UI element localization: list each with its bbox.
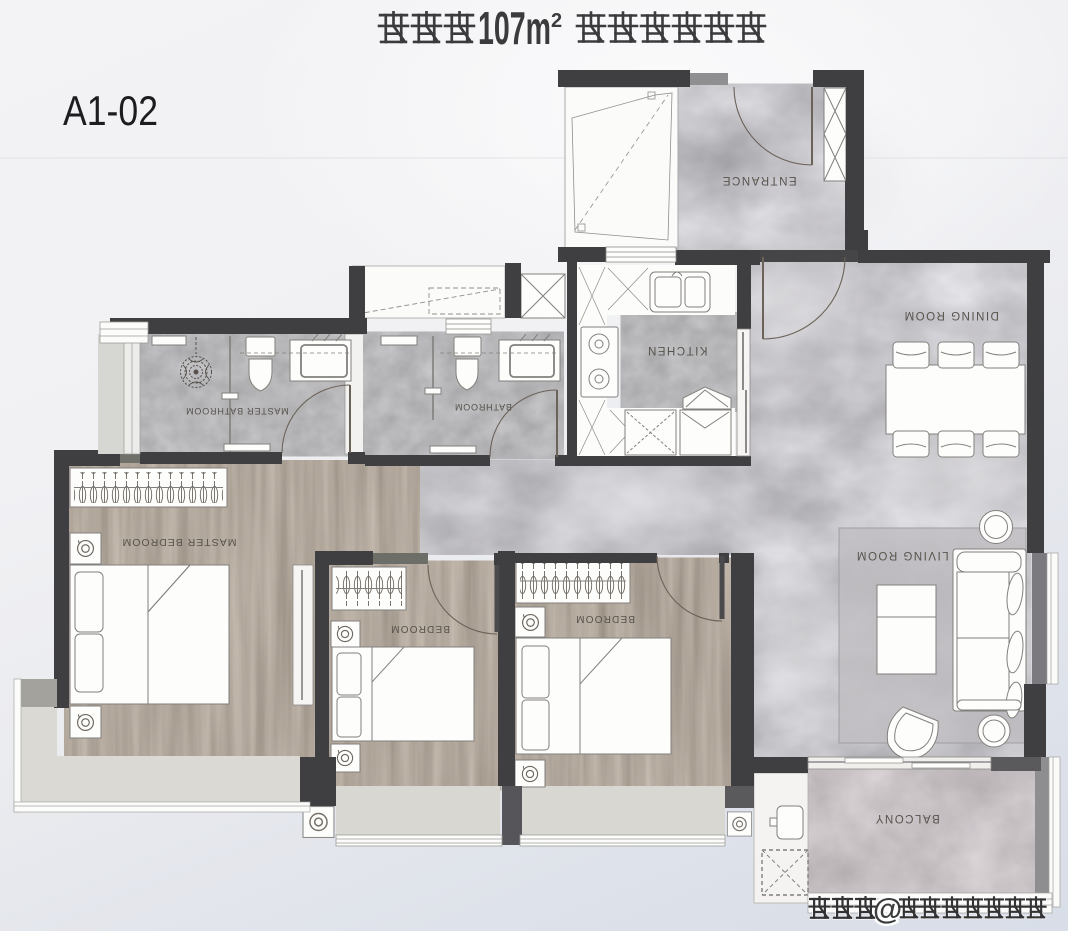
svg-text:MASTER BEDROOM: MASTER BEDROOM [122,536,237,548]
svg-text:BEDROOM: BEDROOM [390,623,450,634]
svg-text:BATHROOM: BATHROOM [454,402,512,412]
svg-text:BALCONY: BALCONY [874,812,939,824]
svg-text:A1-02: A1-02 [63,87,158,134]
svg-text:DINING ROOM: DINING ROOM [903,309,999,321]
svg-text:@: @ [873,893,902,926]
svg-text:LIVING ROOM: LIVING ROOM [855,549,948,561]
svg-text:107m: 107m [478,2,551,54]
svg-text:BEDROOM: BEDROOM [575,613,635,624]
svg-text:MASTER BATHROOM: MASTER BATHROOM [185,406,288,416]
svg-text:KITCHEN: KITCHEN [647,344,708,356]
svg-text:ENTRANCE: ENTRANCE [721,174,796,186]
svg-text:2: 2 [551,10,562,32]
